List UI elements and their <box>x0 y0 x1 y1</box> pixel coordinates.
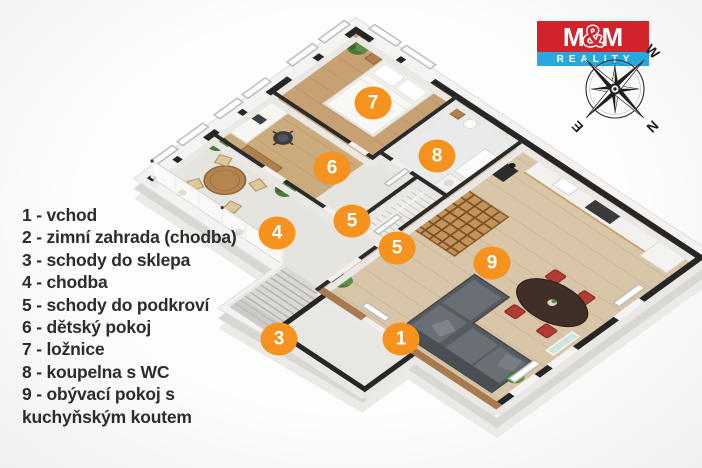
room-badge-8: 8 <box>419 140 456 173</box>
legend-item: 4 - chodba <box>22 271 246 293</box>
legend-item: 1 - vchod <box>22 204 246 226</box>
room-badge-6: 6 <box>314 152 351 185</box>
compass-letter-n: N <box>643 117 661 135</box>
legend-item: 7 - ložnice <box>22 338 246 360</box>
legend-item: 9 - obývací pokoj s kuchyňským koutem <box>22 383 246 428</box>
compass-letter-e: E <box>568 118 586 136</box>
legend-item: 6 - dětský pokoj <box>22 316 246 338</box>
room-badge-3: 3 <box>261 323 298 356</box>
room-badge-7: 7 <box>355 87 392 120</box>
legend-item: 2 - zimní zahrada (chodba) <box>22 226 246 248</box>
compass-rose: W N E <box>553 30 683 152</box>
compass-letter-w: W <box>642 41 663 62</box>
legend-item: 8 - koupelna s WC <box>22 361 246 383</box>
room-badge-9: 9 <box>474 247 511 280</box>
room-badge-5b: 5 <box>379 232 416 265</box>
room-badge-1: 1 <box>383 323 420 356</box>
legend-item: 3 - schody do sklepa <box>22 249 246 271</box>
room-badge-4: 4 <box>259 217 296 250</box>
legend-item: 5 - schody do podkroví <box>22 294 246 316</box>
legend: 1 - vchod 2 - zimní zahrada (chodba) 3 -… <box>22 204 246 428</box>
room-badge-5a: 5 <box>334 205 371 238</box>
